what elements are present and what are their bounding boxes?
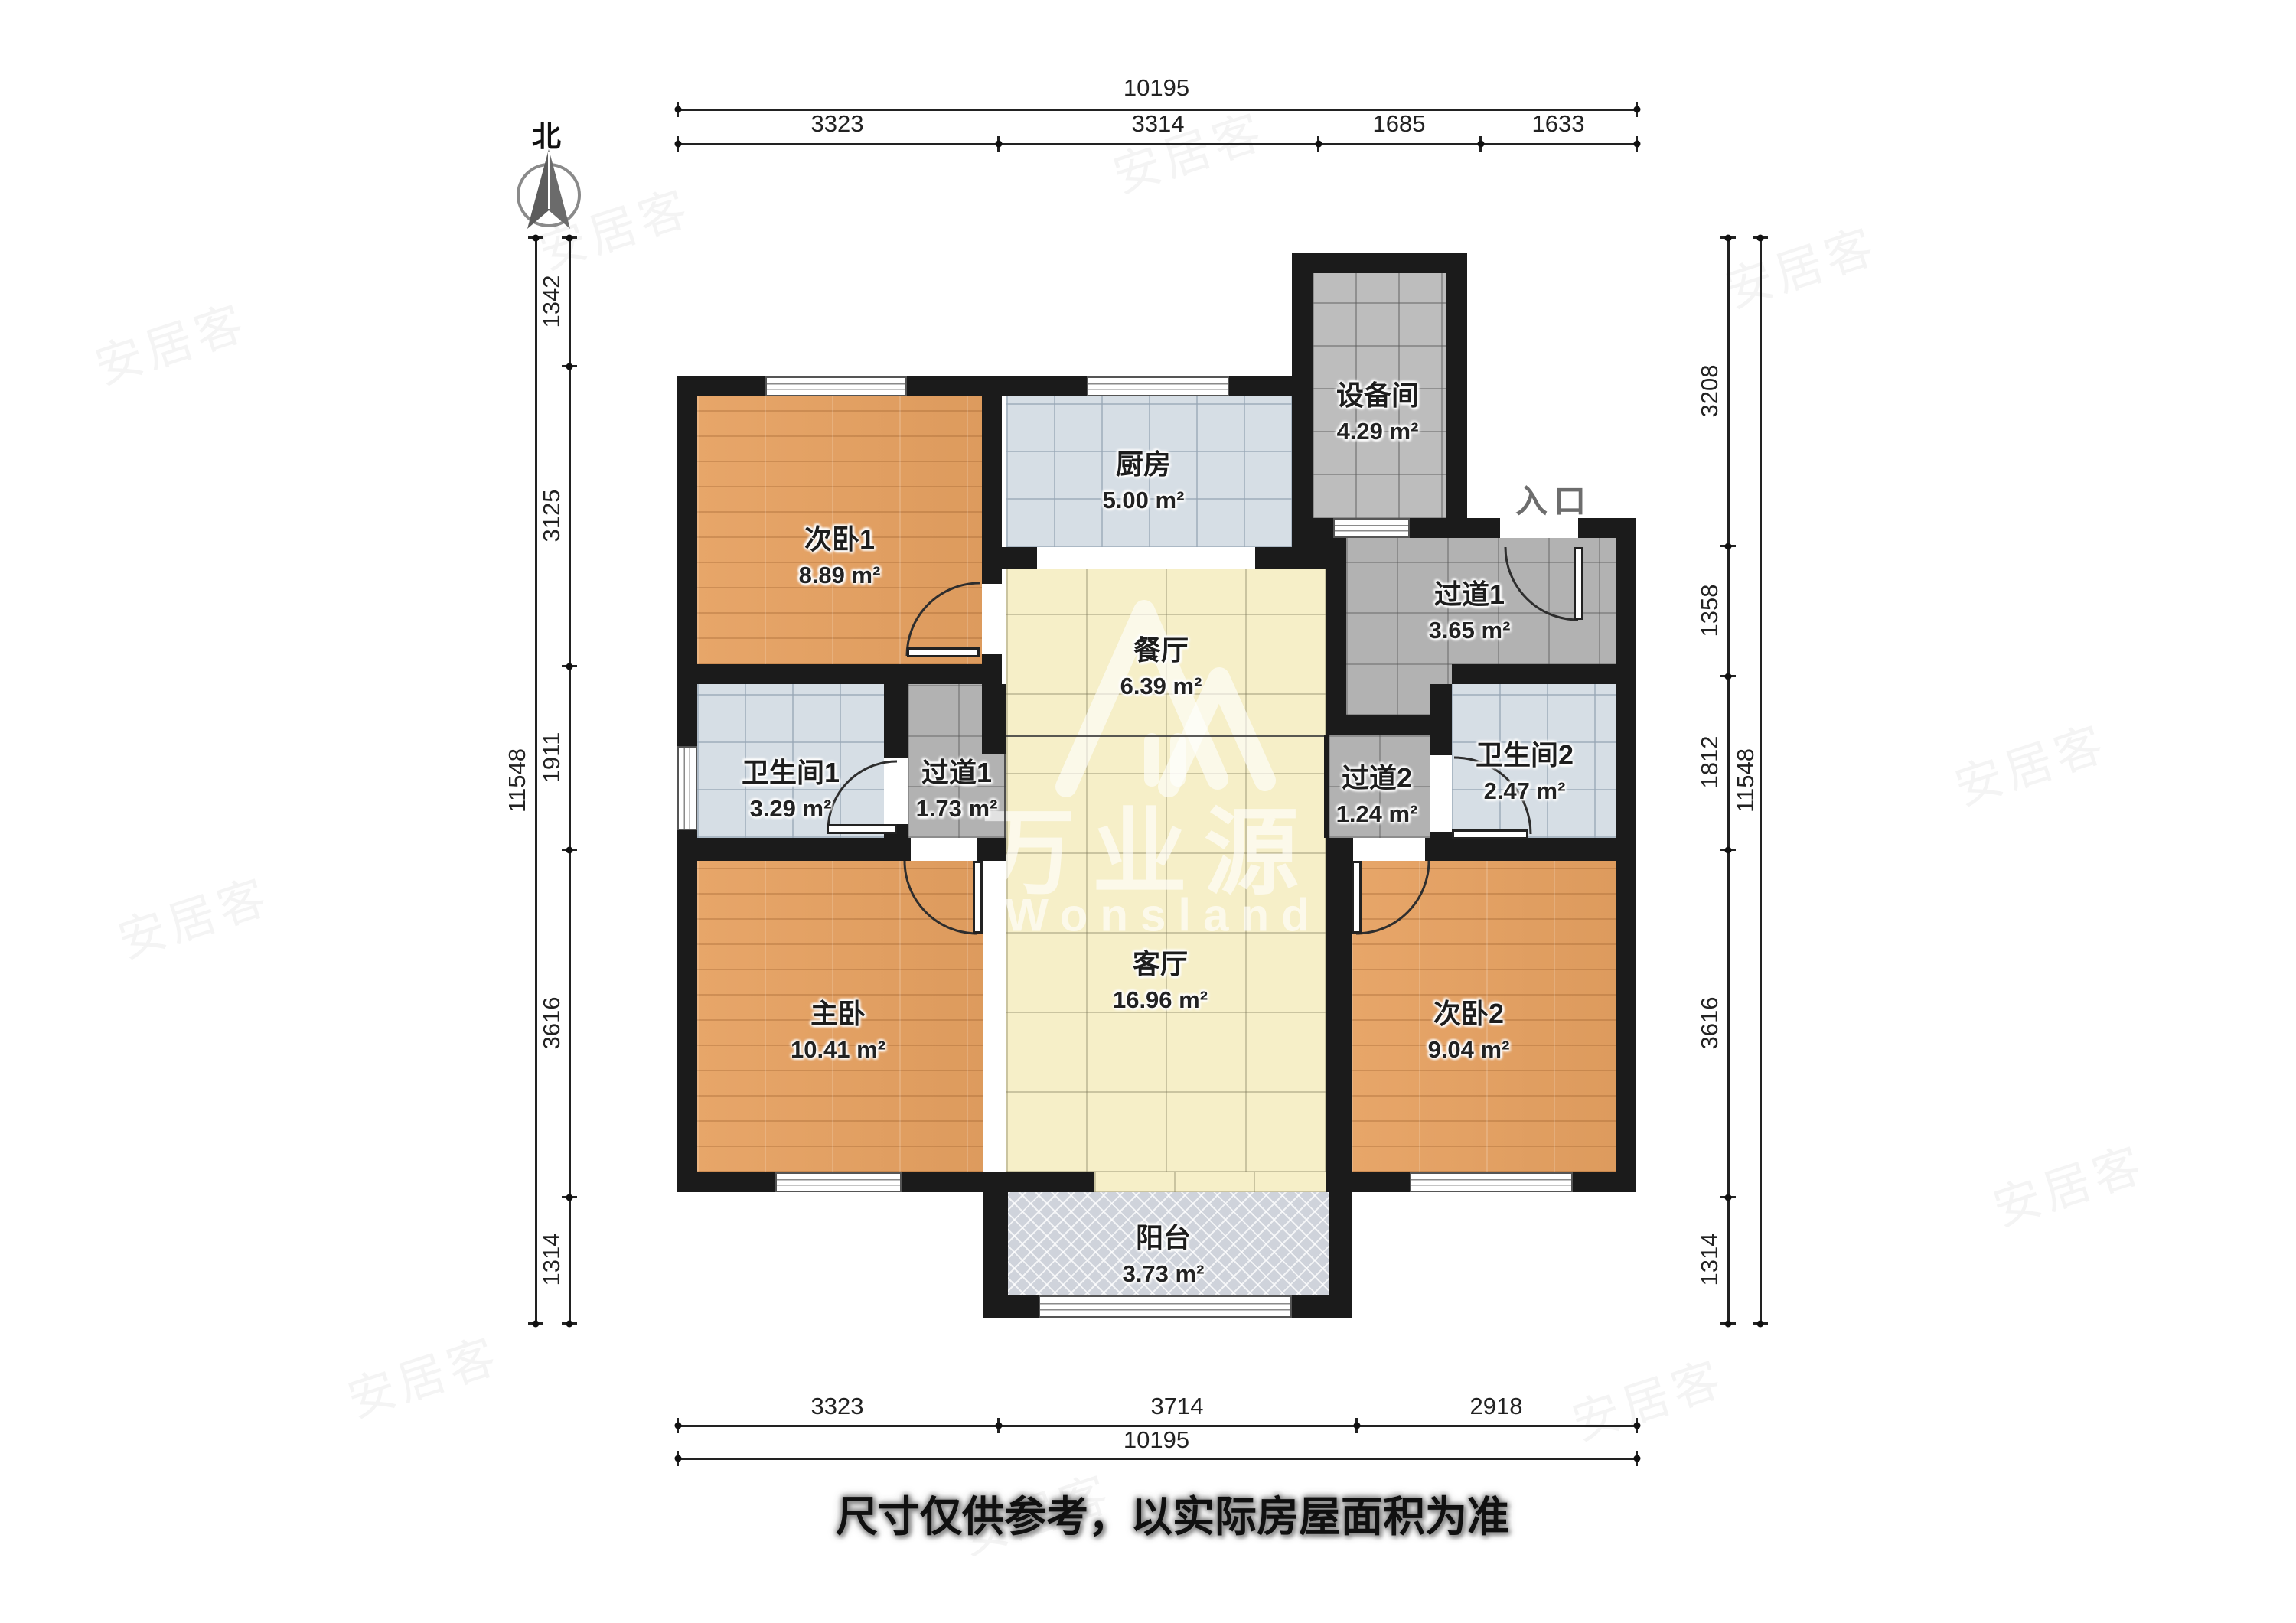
dim-label: 1342 — [538, 275, 566, 328]
dim-label: 3323 — [811, 1393, 864, 1420]
dim-line — [569, 237, 571, 1323]
dim-tick — [562, 1196, 577, 1198]
room-name: 次卧1 — [799, 517, 881, 557]
room-label-living: 客厅 16.96 m² — [1113, 942, 1208, 1014]
dim-tick — [677, 136, 679, 152]
dim-tick — [562, 849, 577, 851]
room-name: 卫生间1 — [742, 751, 840, 790]
dim-label: 3208 — [1696, 365, 1724, 418]
door-leaf — [827, 824, 897, 834]
door-leaf — [1574, 547, 1583, 620]
dim-tick — [1720, 545, 1736, 547]
door-leaf — [1452, 829, 1528, 839]
room-label-bedroom-1: 次卧1 8.89 m² — [799, 517, 881, 589]
room-label-kitchen: 厨房 5.00 m² — [1103, 442, 1185, 514]
room-area: 3.65 m² — [1429, 617, 1511, 644]
dim-label: 11548 — [504, 748, 531, 813]
dim-tick — [1636, 136, 1638, 152]
dim-label: 11548 — [1732, 748, 1760, 813]
dim-tick — [677, 1418, 679, 1433]
room-area: 3.73 m² — [1123, 1260, 1205, 1288]
dim-line — [677, 1458, 1636, 1460]
north-compass-icon — [488, 143, 610, 243]
room-area: 5.00 m² — [1103, 487, 1185, 514]
room-label-master: 主卧 10.41 m² — [791, 992, 885, 1064]
room-area: 9.04 m² — [1428, 1036, 1510, 1064]
room-name: 过道2 — [1336, 756, 1418, 796]
room-name: 过道1 — [916, 751, 998, 790]
room-area: 4.29 m² — [1336, 418, 1419, 445]
dim-label: 1358 — [1696, 585, 1724, 637]
door-leaf — [907, 647, 980, 657]
dim-tick — [562, 1322, 577, 1325]
room-name: 过道1 — [1429, 572, 1511, 612]
dim-tick — [528, 236, 543, 239]
room-label-hall-2: 过道2 1.24 m² — [1336, 756, 1418, 828]
dim-tick — [1720, 675, 1736, 677]
disclaimer-text: 尺寸仅供参考，以实际房屋面积为准 — [836, 1482, 1509, 1543]
dim-label: 2918 — [1470, 1393, 1523, 1420]
door-leaf — [973, 861, 983, 934]
room-label-balcony: 阳台 3.73 m² — [1123, 1216, 1205, 1288]
room-name: 餐厅 — [1120, 628, 1202, 668]
dim-line — [1760, 237, 1762, 1323]
dim-label: 3314 — [1132, 110, 1185, 138]
room-area: 6.39 m² — [1120, 673, 1202, 700]
room-label-hall1-mid: 过道1 1.73 m² — [916, 751, 998, 823]
dim-label: 10195 — [1124, 74, 1189, 102]
dim-tick — [1753, 1322, 1768, 1325]
dim-tick — [562, 236, 577, 239]
dim-tick — [1479, 136, 1482, 152]
entrance-label: 入口 — [1515, 476, 1592, 523]
room-area: 16.96 m² — [1113, 986, 1208, 1014]
dim-tick — [562, 665, 577, 667]
dim-label: 3125 — [538, 490, 566, 543]
dim-label: 1812 — [1696, 736, 1724, 789]
room-name: 阳台 — [1123, 1216, 1205, 1256]
dim-tick — [1355, 1418, 1358, 1433]
dim-tick — [1636, 1418, 1638, 1433]
dim-tick — [528, 1322, 543, 1325]
room-area: 10.41 m² — [791, 1036, 885, 1064]
dim-tick — [677, 102, 679, 117]
dim-label: 3616 — [538, 997, 566, 1050]
dim-tick — [1720, 1196, 1736, 1198]
room-label-hall1-entry: 过道1 3.65 m² — [1429, 572, 1511, 644]
dim-tick — [1317, 136, 1319, 152]
dim-label: 3616 — [1696, 997, 1724, 1050]
floorplan-canvas: 安居客 安居客 安居客 安居客 安居客 安居客 安居客 安居客 安居客 安居客 … — [0, 0, 2296, 1623]
dim-label: 1685 — [1373, 110, 1426, 138]
dim-tick — [677, 1451, 679, 1466]
room-area: 2.47 m² — [1476, 777, 1574, 805]
dim-label: 3323 — [811, 110, 864, 138]
dim-tick — [1636, 102, 1638, 117]
room-name: 客厅 — [1113, 942, 1208, 982]
room-label-bedroom-2: 次卧2 9.04 m² — [1428, 992, 1510, 1064]
door-leaf — [1352, 861, 1362, 934]
dim-line — [535, 237, 537, 1323]
room-name: 卫生间2 — [1476, 733, 1574, 773]
dim-label: 10195 — [1124, 1426, 1189, 1454]
room-label-bath-1: 卫生间1 3.29 m² — [742, 751, 840, 823]
room-name: 次卧2 — [1428, 992, 1510, 1031]
dim-tick — [562, 365, 577, 367]
room-area: 1.24 m² — [1336, 800, 1418, 828]
dim-tick — [1636, 1451, 1638, 1466]
dim-tick — [997, 1418, 1000, 1433]
room-label-bath-2: 卫生间2 2.47 m² — [1476, 733, 1574, 805]
room-label-equipment: 设备间 4.29 m² — [1336, 373, 1419, 445]
dim-label: 1911 — [538, 732, 566, 784]
dim-tick — [1720, 1322, 1736, 1325]
door-swing-arcs — [0, 0, 2296, 1623]
room-area: 1.73 m² — [916, 795, 998, 823]
room-area: 3.29 m² — [742, 795, 840, 823]
dim-tick — [1720, 849, 1736, 851]
dim-line — [1727, 237, 1730, 1323]
room-area: 8.89 m² — [799, 562, 881, 589]
dim-tick — [1753, 236, 1768, 239]
room-label-dining: 餐厅 6.39 m² — [1120, 628, 1202, 700]
dim-label: 3714 — [1151, 1393, 1204, 1420]
dim-label: 1314 — [1696, 1234, 1724, 1286]
room-name: 厨房 — [1103, 442, 1185, 482]
dim-label: 1314 — [538, 1234, 566, 1286]
dim-line — [677, 143, 1636, 145]
dim-tick — [1720, 236, 1736, 239]
dim-tick — [997, 136, 1000, 152]
room-name: 主卧 — [791, 992, 885, 1031]
room-name: 设备间 — [1336, 373, 1419, 413]
dim-label: 1633 — [1532, 110, 1585, 138]
